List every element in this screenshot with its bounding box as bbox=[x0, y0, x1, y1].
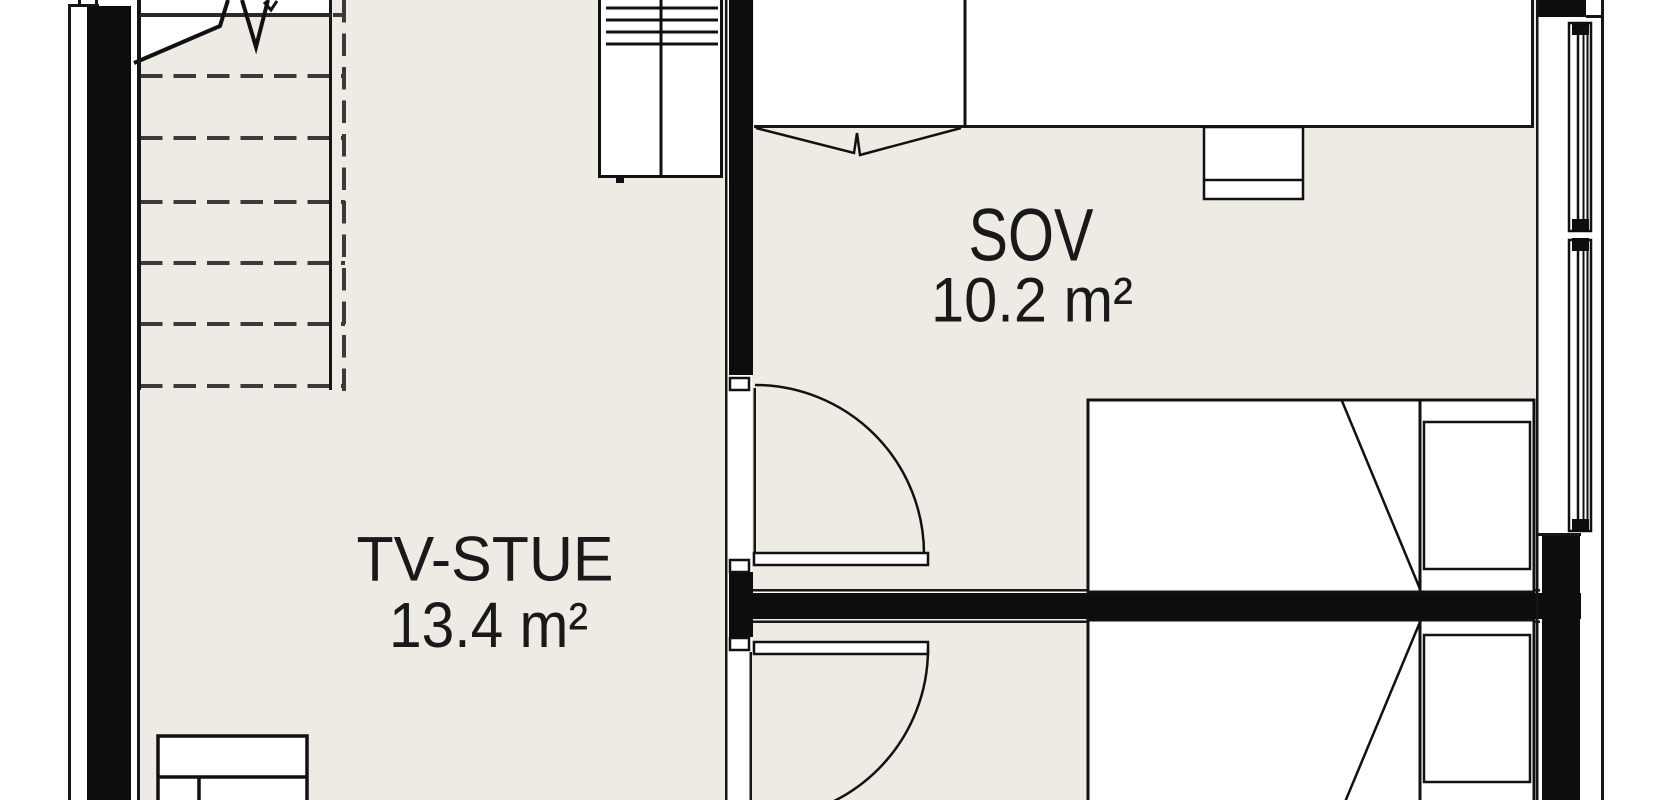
svg-text:TV-STUE: TV-STUE bbox=[357, 525, 614, 595]
svg-text:10.2 m²: 10.2 m² bbox=[931, 266, 1133, 336]
svg-text:13.4 m²: 13.4 m² bbox=[389, 589, 588, 661]
svg-text:SOV: SOV bbox=[969, 194, 1095, 277]
